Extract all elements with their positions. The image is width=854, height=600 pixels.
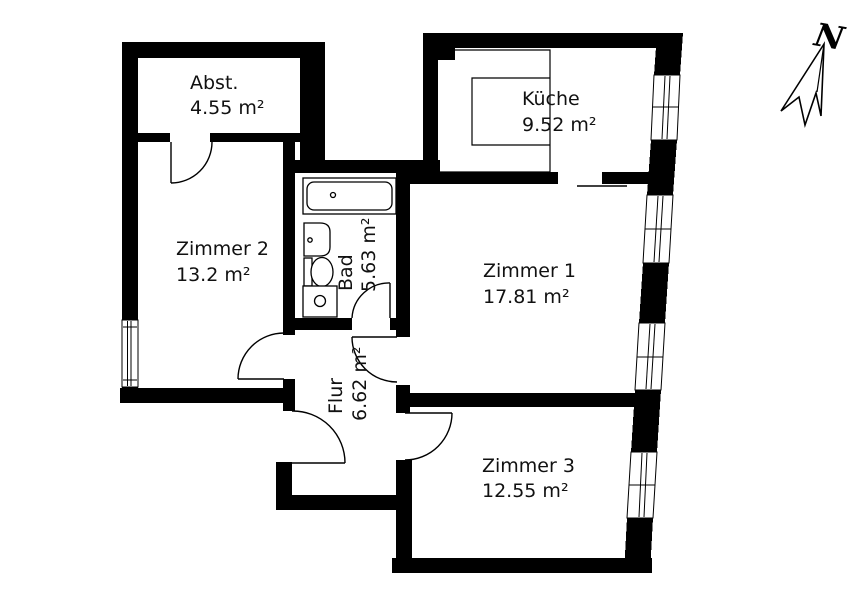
- wall-central-upper: [396, 172, 410, 337]
- label-zimmer1-area: 17.81 m²: [483, 286, 570, 308]
- label-flur-area: 6.62 m²: [349, 347, 371, 421]
- wall-entrance-post: [283, 403, 295, 411]
- wall-abst-right: [300, 42, 325, 173]
- wall-facade-1: [654, 33, 683, 75]
- bathtub: [303, 178, 396, 214]
- label-zimmer2-area: 13.2 m²: [176, 264, 250, 286]
- label-bad-name: Bad: [335, 254, 357, 291]
- wall-abst-top: [122, 42, 325, 58]
- label-zimmer1-name: Zimmer 1: [483, 260, 576, 282]
- shower: [303, 286, 337, 317]
- wall-bad-bottom-left: [283, 318, 352, 330]
- wall-kueche-bottom-left: [410, 172, 558, 184]
- wall-central-lower: [396, 460, 412, 573]
- sink: [304, 223, 330, 256]
- wall-zimmer2-bottom: [120, 388, 295, 403]
- wall-flur-bottom: [276, 495, 412, 510]
- wall-kueche-left: [423, 33, 438, 172]
- window-kueche: [651, 75, 680, 140]
- wall-facade-4: [631, 390, 661, 452]
- toilet: [304, 258, 333, 287]
- label-flur-name: Flur: [325, 378, 347, 414]
- window-zimmer2: [122, 320, 138, 387]
- wall-facade-2: [647, 140, 677, 195]
- wall-abst-bottom-right: [210, 133, 303, 142]
- label-abst-name: Abst.: [190, 72, 238, 94]
- wall-zimmer2-bad: [283, 142, 295, 335]
- window-zimmer1-upper: [643, 195, 673, 263]
- wall-bad-top: [295, 160, 440, 173]
- label-zimmer2-name: Zimmer 2: [176, 238, 269, 260]
- label-abst-area: 4.55 m²: [190, 97, 264, 119]
- label-kueche-area: 9.52 m²: [522, 114, 596, 136]
- floor-plan: Abst. 4.55 m² Küche 9.52 m² Zimmer 2 13.…: [0, 0, 854, 600]
- window-zimmer1-lower: [635, 323, 665, 390]
- label-zimmer3-area: 12.55 m²: [482, 480, 569, 502]
- wall-zimmer1-zimmer3: [396, 393, 660, 407]
- wall-zimmer3-bottom: [392, 558, 652, 573]
- wall-facade-3: [639, 263, 669, 323]
- label-kueche-name: Küche: [522, 88, 580, 110]
- label-bad-area: 5.63 m²: [358, 218, 380, 292]
- wall-left-upper: [122, 42, 138, 320]
- wall-facade-5: [624, 518, 653, 573]
- wall-kueche-top: [423, 33, 678, 48]
- window-zimmer3: [627, 452, 657, 518]
- label-zimmer3-name: Zimmer 3: [482, 455, 575, 477]
- wall-abst-bottom-left: [122, 133, 170, 142]
